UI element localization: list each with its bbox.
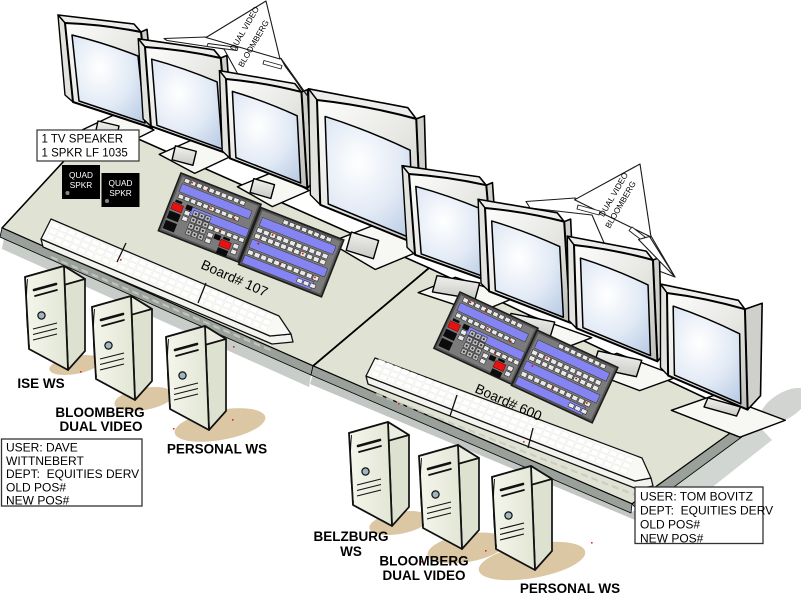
svg-text:NEW POS#: NEW POS# (640, 532, 704, 546)
svg-text:1 TV SPEAKER: 1 TV SPEAKER (42, 134, 124, 146)
svg-text:QUAD: QUAD (69, 170, 93, 180)
svg-text:DUAL VIDEO: DUAL VIDEO (382, 568, 465, 583)
svg-text:1 SPKR LF 1035: 1 SPKR LF 1035 (42, 148, 128, 160)
svg-text:ISE WS: ISE WS (17, 376, 64, 391)
svg-text:WS: WS (340, 544, 362, 559)
svg-text:BLOOMBERG: BLOOMBERG (55, 405, 144, 420)
svg-text:BELZBURG: BELZBURG (314, 529, 389, 544)
svg-text:SPKR: SPKR (70, 180, 93, 190)
svg-text:PERSONAL WS: PERSONAL WS (167, 442, 267, 457)
svg-text:OLD POS#: OLD POS# (6, 480, 66, 494)
svg-text:OLD POS#: OLD POS# (640, 518, 700, 532)
svg-text:WITTNEBERT: WITTNEBERT (6, 454, 84, 468)
svg-text:DUAL VIDEO: DUAL VIDEO (59, 419, 142, 434)
svg-text:DEPT: EQUITIES DERV: DEPT: EQUITIES DERV (640, 504, 773, 518)
svg-text:QUAD: QUAD (109, 178, 133, 188)
svg-text:PERSONAL WS: PERSONAL WS (520, 581, 620, 595)
svg-text:USER: TOM BOVITZ: USER: TOM BOVITZ (640, 490, 753, 504)
svg-text:BLOOMBERG: BLOOMBERG (379, 554, 468, 569)
svg-text:NEW POS#: NEW POS# (6, 494, 70, 508)
svg-text:DEPT: EQUITIES DERV: DEPT: EQUITIES DERV (6, 467, 139, 481)
svg-text:USER: DAVE: USER: DAVE (6, 441, 78, 455)
svg-text:SPKR: SPKR (109, 188, 132, 198)
